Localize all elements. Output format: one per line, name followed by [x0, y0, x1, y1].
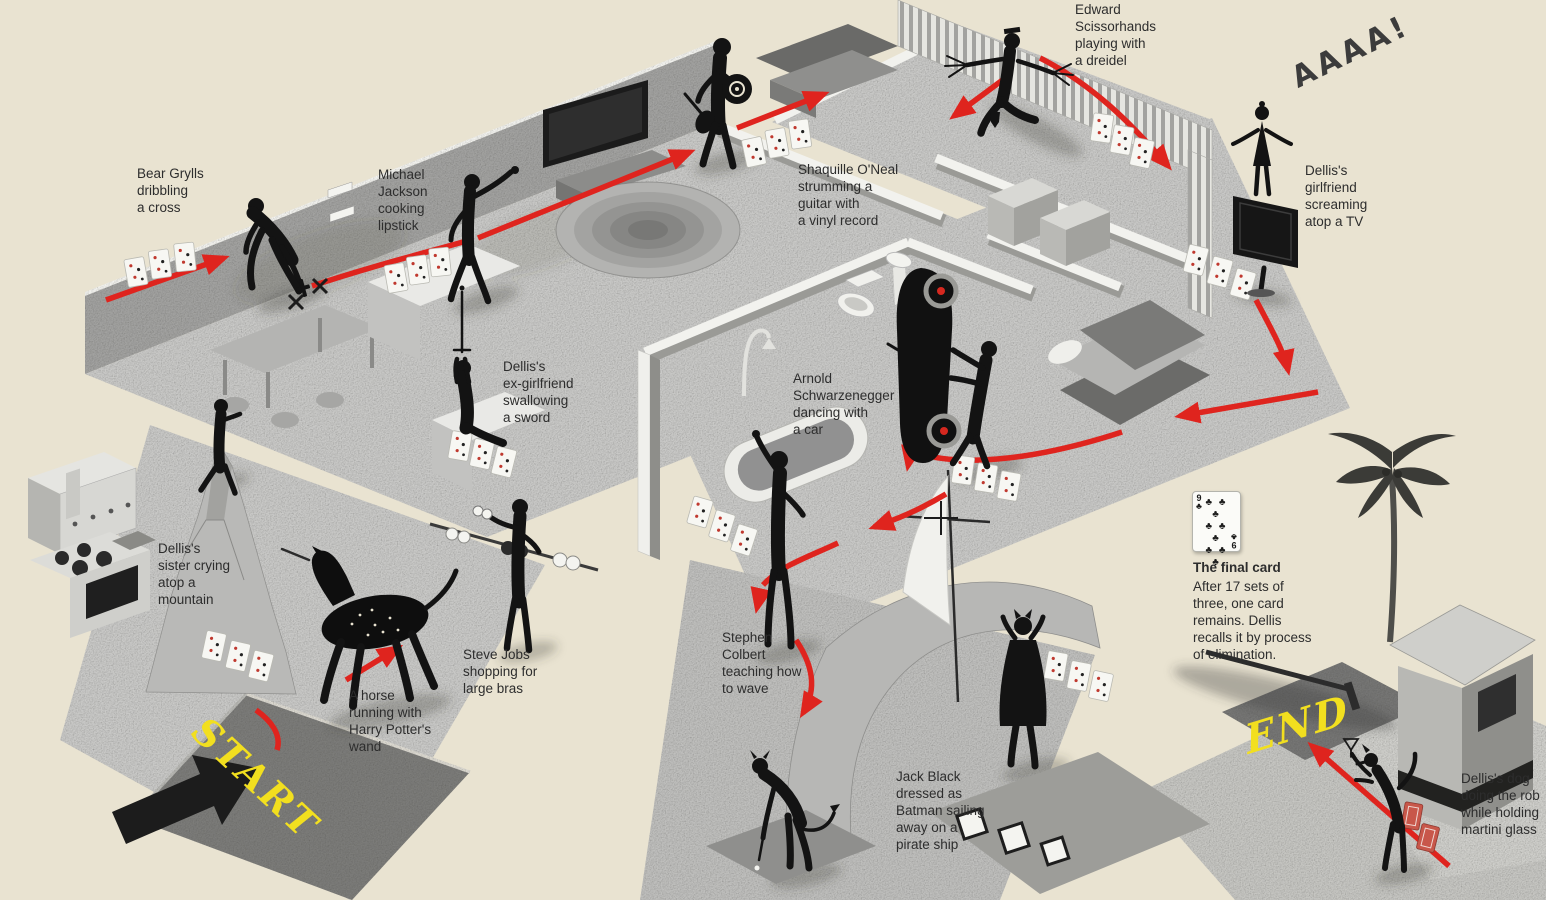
annotation-horse: A horse running with Harry Potter's wand [349, 687, 431, 755]
annotation-edward-scissorhands: Edward Scissorhands playing with a dreid… [1075, 1, 1156, 69]
annotation-ex-girlfriend: Dellis's ex-girlfriend swallowing a swor… [503, 358, 574, 426]
final-card-corner-bottom: 9♣ [1231, 533, 1237, 549]
annotation-girlfriend: Dellis's girlfriend screaming atop a TV [1305, 162, 1367, 230]
annotation-dog: Dellis's dog doing the rob while holding… [1461, 770, 1540, 838]
final-card-pips: ♣ ♣ ♣ ♣ ♣ ♣ ♣ ♣ ♣ [1199, 497, 1234, 546]
palm-tree [1328, 433, 1456, 642]
annotation-shaquille-oneal: Shaquille O'Neal strumming a guitar with… [798, 161, 898, 229]
final-card: 9♣ ♣ ♣ ♣ ♣ ♣ ♣ ♣ ♣ ♣ 9♣ [1192, 491, 1241, 552]
annotation-sister: Dellis's sister crying atop a mountain [158, 540, 230, 608]
memory-palace-infographic: Bear Grylls dribbling a cross Michael Ja… [0, 0, 1546, 900]
annotation-arnold: Arnold Schwarzenegger dancing with a car [793, 370, 894, 438]
final-card-body: After 17 sets of three, one card remains… [1193, 578, 1312, 663]
final-card-title: The final card [1193, 559, 1281, 576]
annotation-steve-jobs: Steve Jobs shopping for large bras [463, 646, 537, 697]
annotation-bear-grylls: Bear Grylls dribbling a cross [137, 165, 204, 216]
annotation-stephen-colbert: Stephen Colbert teaching how to wave [722, 629, 802, 697]
annotation-michael-jackson: Michael Jackson cooking lipstick [378, 166, 428, 234]
annotation-jack-black: Jack Black dressed as Batman sailing awa… [896, 768, 985, 853]
